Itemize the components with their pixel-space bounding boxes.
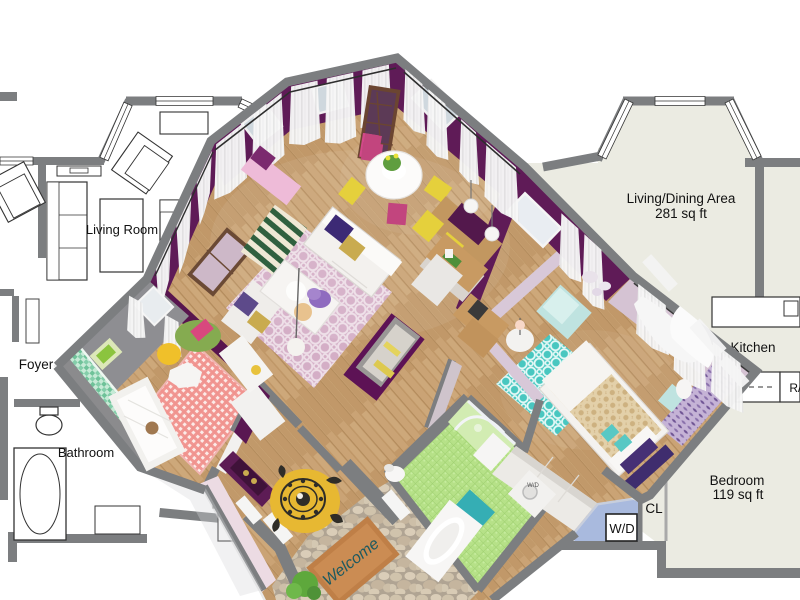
- svg-text:Living/Dining Area: Living/Dining Area: [627, 191, 736, 206]
- svg-text:CL: CL: [645, 501, 663, 516]
- svg-text:Bedroom: Bedroom: [710, 473, 765, 488]
- svg-text:R/F: R/F: [789, 381, 800, 395]
- svg-text:Living Room: Living Room: [86, 222, 158, 237]
- svg-text:W/D: W/D: [527, 483, 539, 489]
- svg-text:Bathroom: Bathroom: [58, 445, 114, 460]
- svg-text:119 sq ft: 119 sq ft: [713, 487, 764, 502]
- svg-text:W/D: W/D: [609, 521, 634, 536]
- svg-text:Foyer: Foyer: [19, 357, 54, 372]
- svg-text:281 sq ft: 281 sq ft: [655, 206, 707, 221]
